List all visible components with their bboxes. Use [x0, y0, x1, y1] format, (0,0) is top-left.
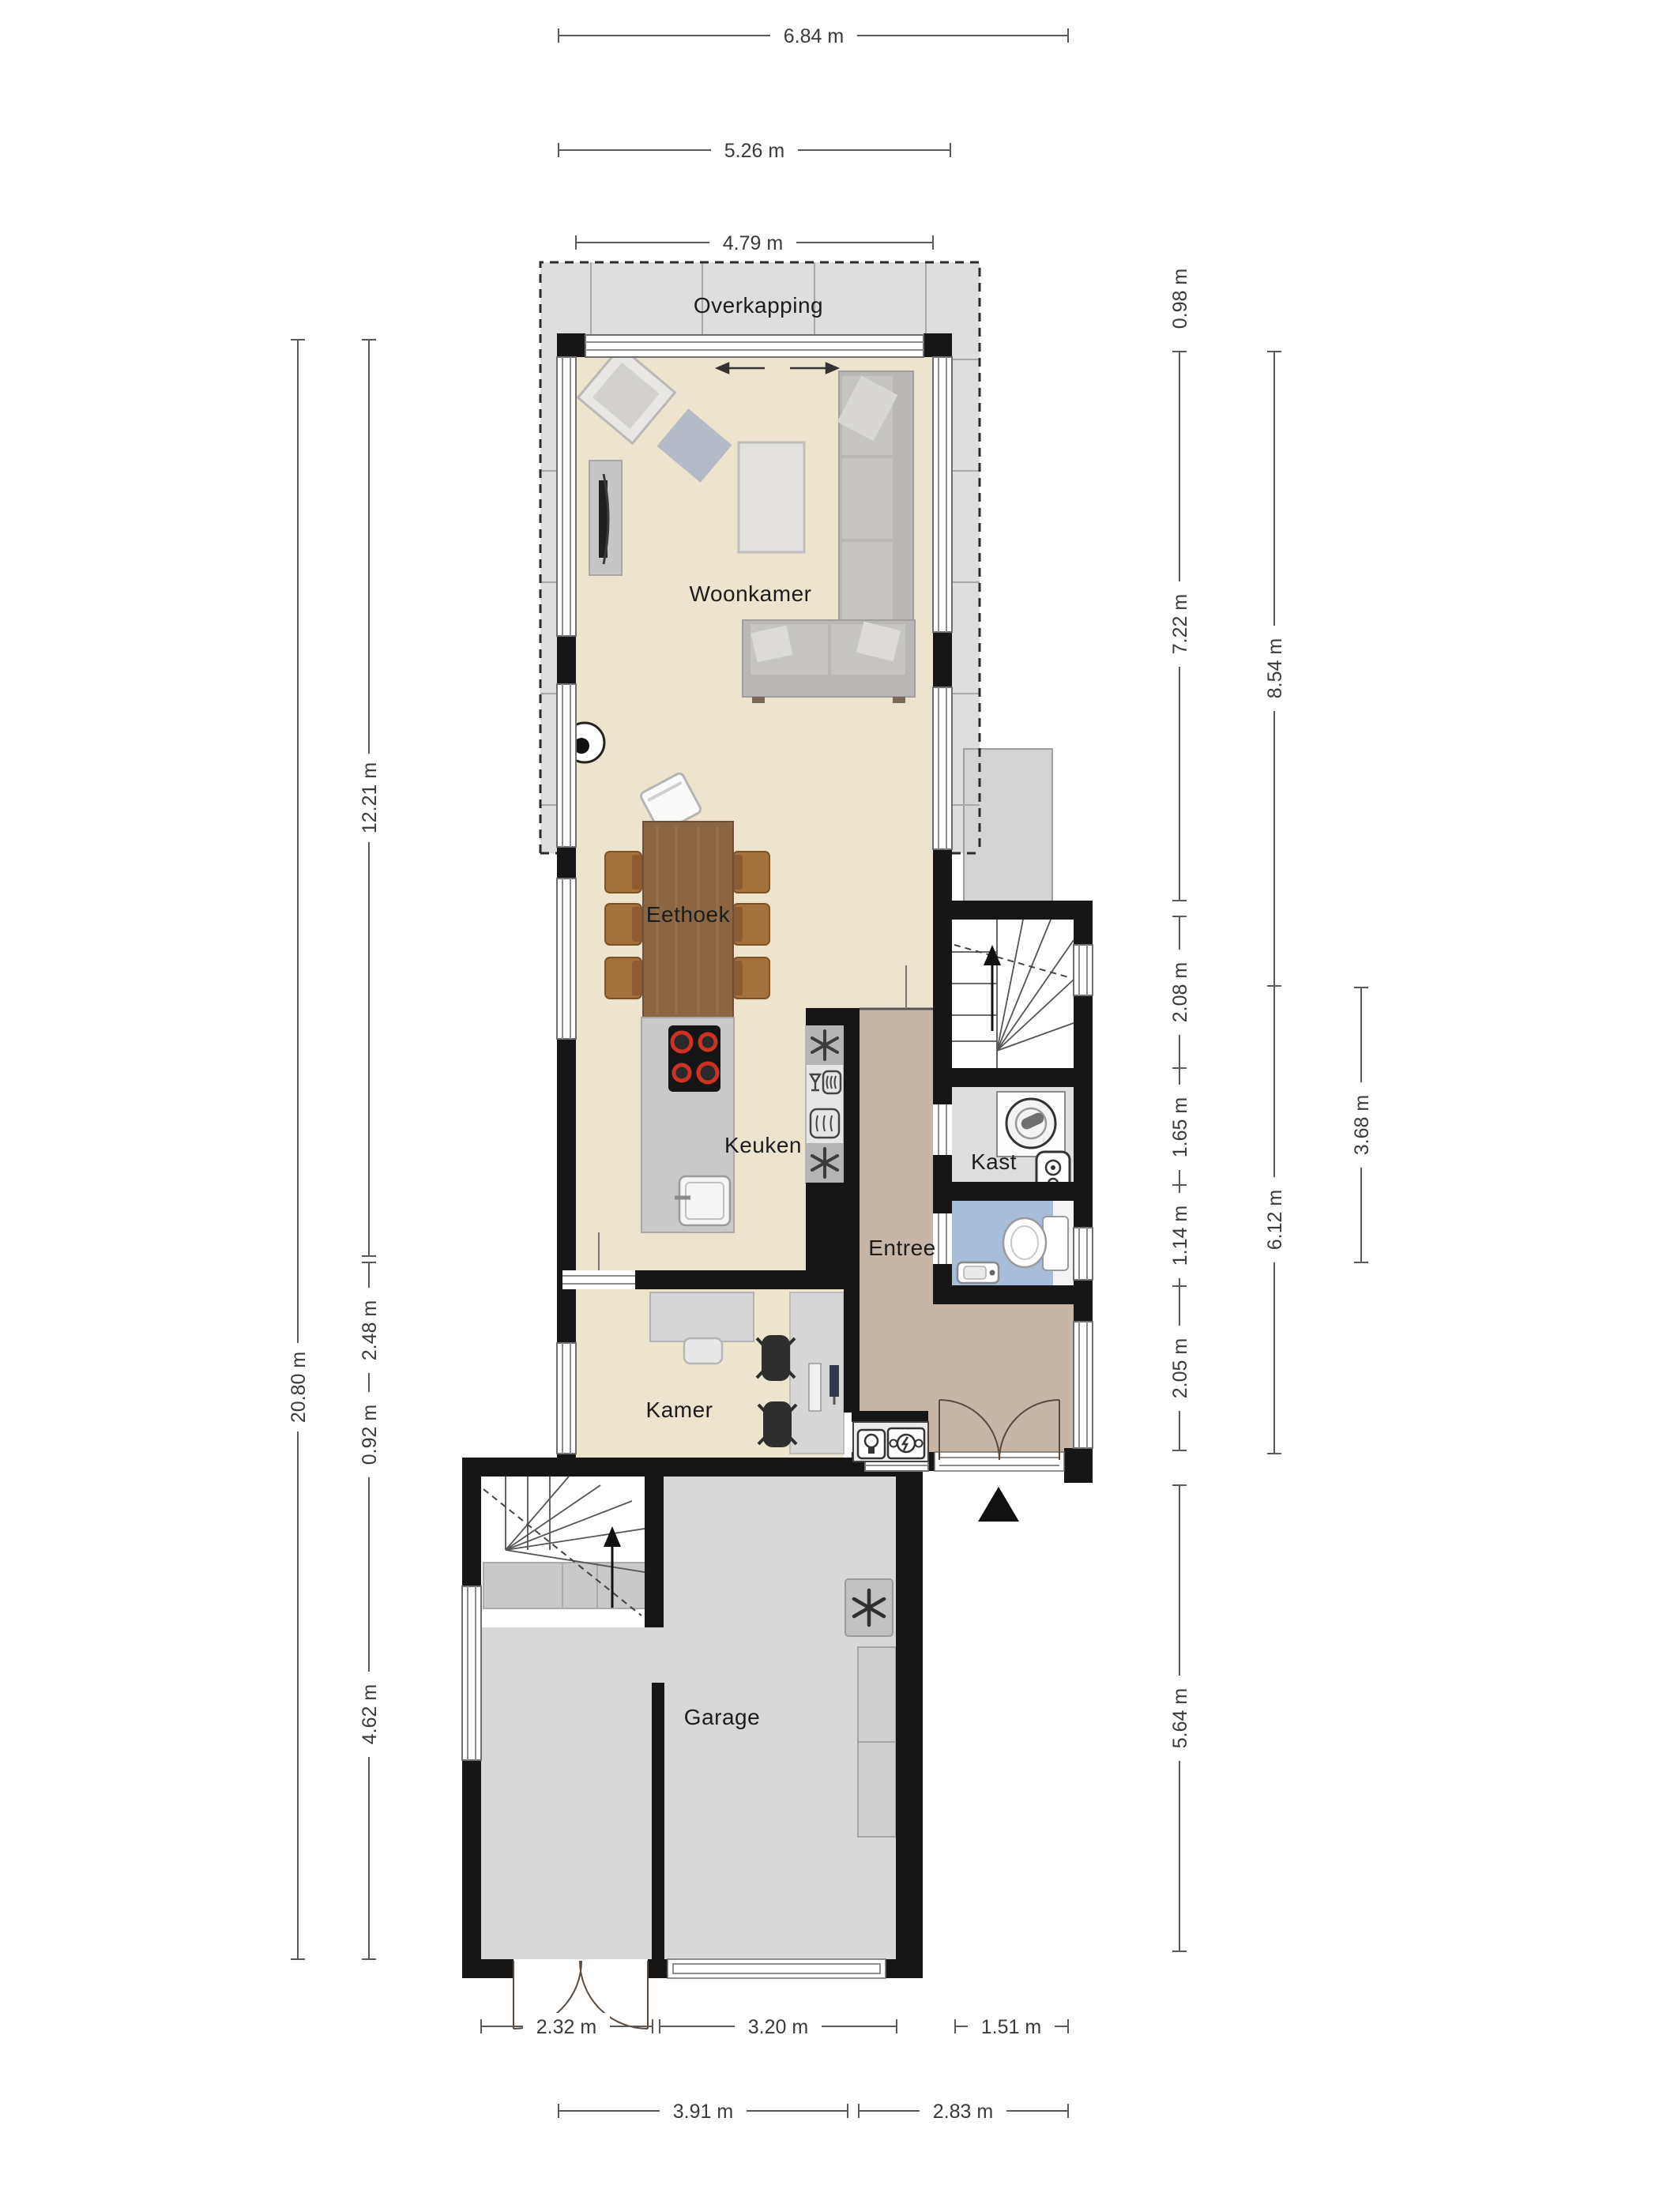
- dim-top-inner: 4.79 m: [723, 232, 783, 254]
- canopy-left-band: [540, 335, 557, 853]
- monitor: [829, 1365, 839, 1397]
- fusebox-icon: [888, 1428, 924, 1458]
- window: [933, 357, 952, 849]
- desk: [650, 1292, 754, 1341]
- room-label-kamer: Kamer: [646, 1398, 713, 1422]
- dim-right-overhang: 0.98 m: [1169, 269, 1191, 329]
- dim-right-woonkamer: 7.22 m: [1169, 594, 1191, 654]
- dim-bottom-garagedoor: 3.20 m: [748, 2016, 808, 2038]
- room-label-kast: Kast: [971, 1149, 1017, 1174]
- garage-cabinet: [858, 1647, 896, 1742]
- dim-bottom-frontdoor: 1.51 m: [981, 2016, 1041, 2038]
- lamp-icon: [858, 1430, 885, 1458]
- sliding-door-window: [585, 335, 924, 357]
- keyboard: [809, 1364, 821, 1411]
- dim-bottom-garage-total: 3.91 m: [673, 2101, 733, 2123]
- dim-right-entree: 2.05 m: [1169, 1338, 1191, 1398]
- meter-cupboard: [853, 1422, 928, 1461]
- room-label-entree: Entree: [868, 1236, 936, 1260]
- dim-left-strip: 0.92 m: [359, 1405, 381, 1465]
- coffee-table: [739, 442, 804, 552]
- room-label-garage: Garage: [684, 1705, 760, 1729]
- floorplan-canvas: 6.84 m 5.26 m 4.79 m 20.80 m 12.21 m 2.4…: [0, 0, 1659, 2212]
- office-chair: [758, 1401, 796, 1447]
- room-label-woonkamer: Woonkamer: [690, 581, 812, 606]
- dim-right-garage: 5.64 m: [1169, 1688, 1191, 1748]
- dim-left-total: 20.80 m: [288, 1352, 310, 1423]
- storage-annex: [964, 749, 1052, 913]
- sink-icon: [957, 1262, 999, 1283]
- dim-right-kast: 1.65 m: [1169, 1097, 1191, 1157]
- dim-right-upper-total: 8.54 m: [1264, 638, 1286, 698]
- dim-bottom-wing-total: 2.83 m: [933, 2101, 993, 2123]
- dim-right-kast-toilet: 3.68 m: [1351, 1095, 1373, 1155]
- room-label-eethoek: Eethoek: [646, 902, 731, 927]
- garage-cabinet: [858, 1742, 896, 1837]
- workbench: [483, 1563, 660, 1608]
- dim-left-kamer: 2.48 m: [359, 1300, 381, 1360]
- dim-right-stairs: 2.08 m: [1169, 962, 1191, 1022]
- dim-right-toilet: 1.14 m: [1169, 1206, 1191, 1266]
- dim-top-overhang: 6.84 m: [784, 25, 844, 47]
- stairs-floor: [952, 920, 1074, 1068]
- dim-left-upper: 12.21 m: [359, 762, 381, 833]
- window: [462, 1586, 481, 1760]
- room-label-keuken: Keuken: [724, 1133, 802, 1157]
- dim-bottom-swingdoor: 2.32 m: [536, 2016, 596, 2038]
- office-chair: [757, 1335, 795, 1381]
- garage-door: [668, 1959, 886, 1978]
- dim-right-wing-total: 6.12 m: [1264, 1190, 1286, 1250]
- north-arrow: [978, 1487, 1019, 1522]
- dim-left-garage: 4.62 m: [359, 1684, 381, 1744]
- dim-top-house: 5.26 m: [724, 140, 784, 162]
- desk-chair: [684, 1338, 722, 1364]
- room-label-overkapping: Overkapping: [694, 293, 823, 318]
